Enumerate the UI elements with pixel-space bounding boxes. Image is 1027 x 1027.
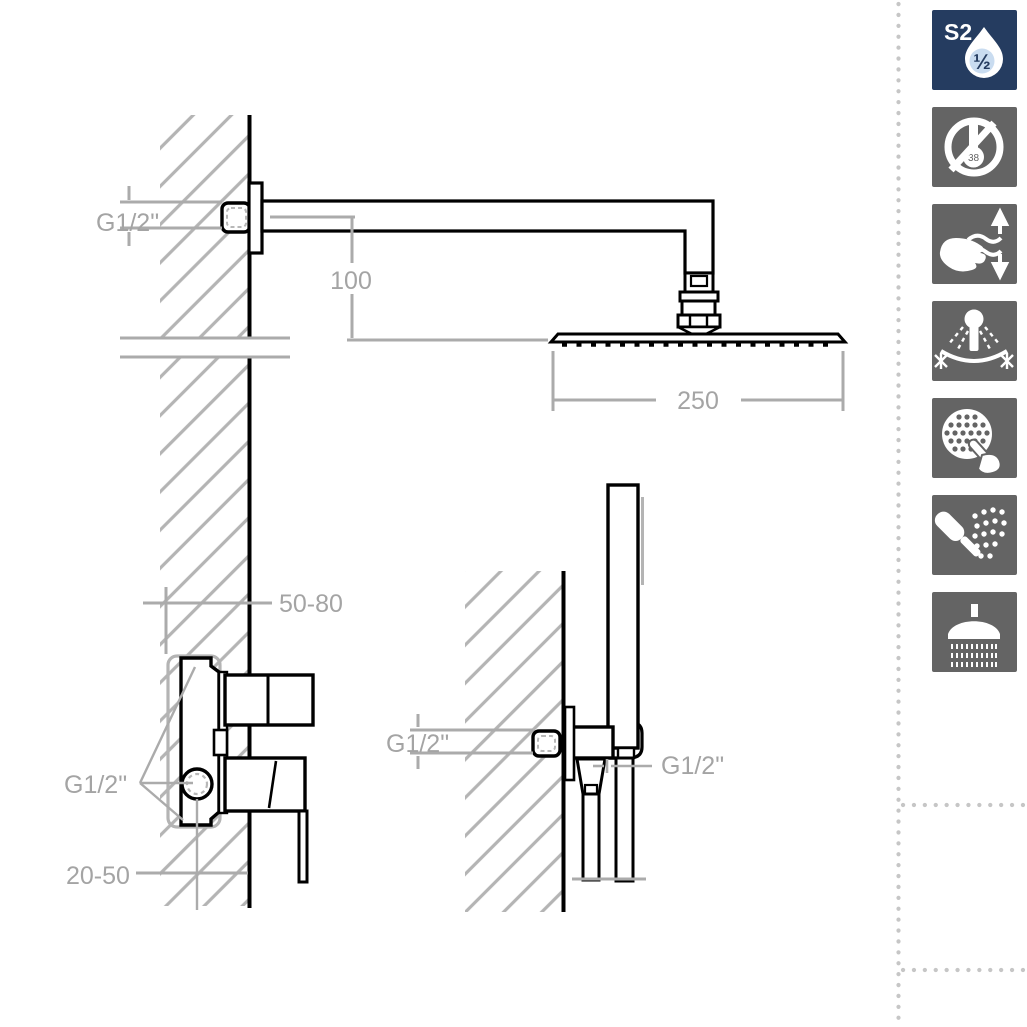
badge-fraction: ½ bbox=[973, 51, 991, 74]
badge-code: S2 bbox=[944, 19, 972, 45]
wall-break-lines bbox=[120, 338, 290, 357]
rain-shower-head bbox=[551, 334, 845, 342]
dim-label-250: 250 bbox=[677, 387, 719, 415]
dim-label-arm-supply: G1/2" bbox=[96, 209, 159, 237]
handle-base bbox=[225, 758, 305, 811]
handshower-handle bbox=[608, 485, 638, 748]
dim-label-hose-g12: G1/2" bbox=[661, 752, 724, 780]
shower-arm-assembly bbox=[222, 183, 845, 345]
swivel-head-antifreeze-icon bbox=[932, 301, 1017, 381]
lever-handle bbox=[299, 811, 307, 882]
no-thermostat-38-icon: 38 bbox=[932, 107, 1017, 187]
outlet-hose bbox=[583, 794, 599, 880]
flow-adjust-hand-icon bbox=[932, 204, 1017, 284]
easy-clean-nozzles-icon bbox=[932, 398, 1017, 478]
arm-escutcheon bbox=[249, 183, 262, 253]
outlet-escutcheon bbox=[565, 707, 574, 780]
page: G1/2" 100 250 50-80 G1/2" 20-50 G1/2" G1… bbox=[0, 0, 1027, 1027]
installation-diagram: G1/2" 100 250 50-80 G1/2" 20-50 G1/2" G1… bbox=[0, 0, 1027, 1027]
valve-middle-port bbox=[214, 730, 227, 755]
shower-arm bbox=[262, 201, 713, 273]
handshower-spray-icon bbox=[932, 495, 1017, 575]
s2-half-inch-badge: S2 ½ bbox=[932, 10, 1017, 90]
dim-label-outlet-g12: G1/2" bbox=[386, 730, 449, 758]
head-swivel-connector bbox=[678, 273, 720, 334]
dim-label-20-50: 20-50 bbox=[66, 862, 130, 890]
dim-label-50-80: 50-80 bbox=[279, 590, 343, 618]
handshower-hose bbox=[616, 758, 633, 881]
wall-outlet-elbow bbox=[573, 727, 613, 758]
dim-label-100: 100 bbox=[330, 267, 372, 295]
rain-shower-icon bbox=[932, 592, 1017, 672]
dim-label-valve-g12: G1/2" bbox=[64, 771, 127, 799]
outlet-wall-nipple bbox=[533, 731, 560, 756]
